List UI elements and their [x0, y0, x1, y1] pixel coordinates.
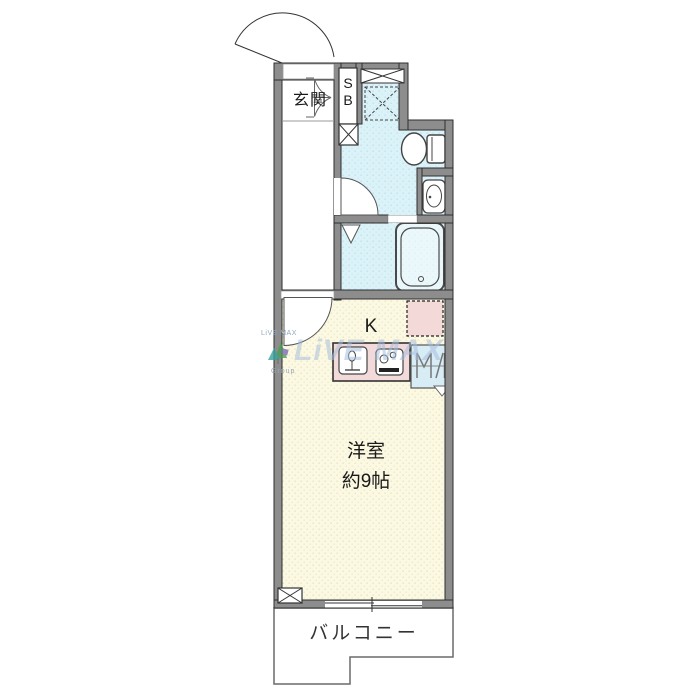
balcony-label: バルコニー: [283, 618, 445, 645]
pipe-space-icon-bottom: [278, 588, 302, 603]
floor-plan: 玄関 S B K 洋室 約9帖 バルコニー LiVE MAX Group LiV…: [0, 0, 700, 700]
entrance-doorway: [283, 64, 334, 79]
wall-left: [274, 63, 282, 608]
stove-icon: [376, 349, 403, 375]
bath-doorway: [388, 216, 417, 223]
washing-machine-icon: [411, 345, 446, 388]
wall-basin-side: [417, 168, 422, 216]
kitchen-sink-icon: [339, 347, 367, 374]
entrance-door-swing: [235, 13, 334, 63]
washroom-doorway: [334, 178, 341, 215]
wall-bath-divider-right: [417, 215, 453, 223]
toilet-icon: [402, 133, 446, 165]
kitchen-label: K: [356, 316, 386, 338]
entrance-label: 玄関: [284, 86, 336, 110]
vent-shaft-icon: [361, 69, 404, 83]
wash-basin-icon: [423, 180, 445, 213]
wall-bath-divider-left: [334, 215, 388, 223]
pipe-space-icon-top: [339, 124, 358, 145]
shoe-box-label: S B: [339, 75, 357, 109]
wall-right-main: [445, 120, 453, 608]
bathtub-icon: [396, 223, 444, 291]
exterior-notch: [407, 55, 455, 121]
main-room-label: 洋室 約9帖: [296, 437, 436, 497]
refrigerator-space: [407, 301, 443, 336]
